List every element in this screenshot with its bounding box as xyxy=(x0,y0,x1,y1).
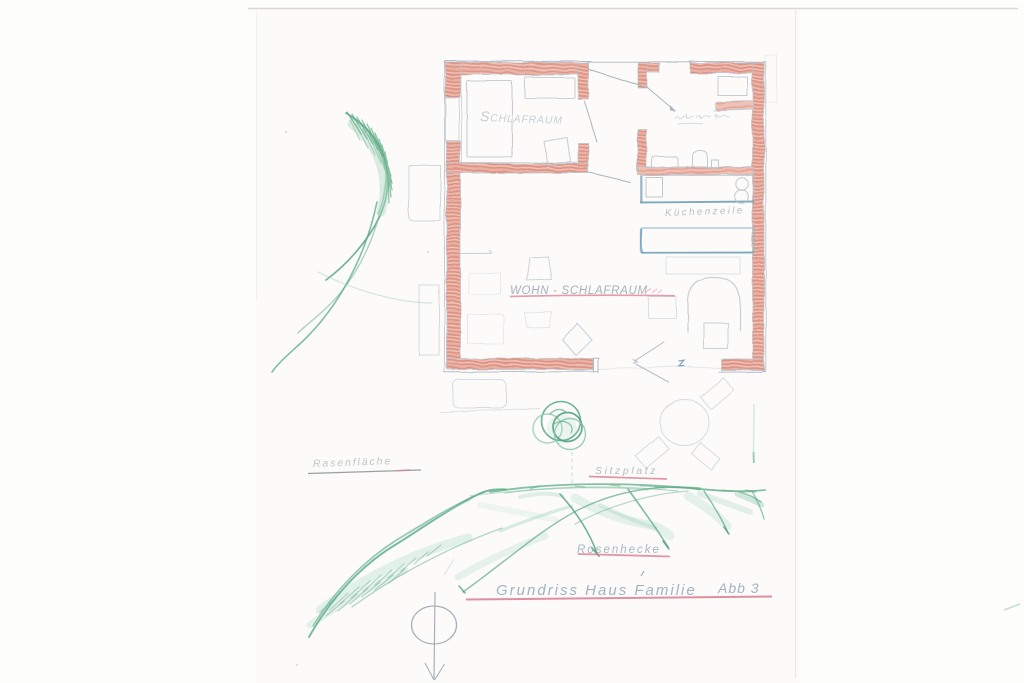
svg-text:Sitzplatz: Sitzplatz xyxy=(595,465,658,477)
svg-text:Abb 3: Abb 3 xyxy=(717,580,760,596)
svg-text:Grundriss Haus Familie: Grundriss Haus Familie xyxy=(496,582,697,599)
